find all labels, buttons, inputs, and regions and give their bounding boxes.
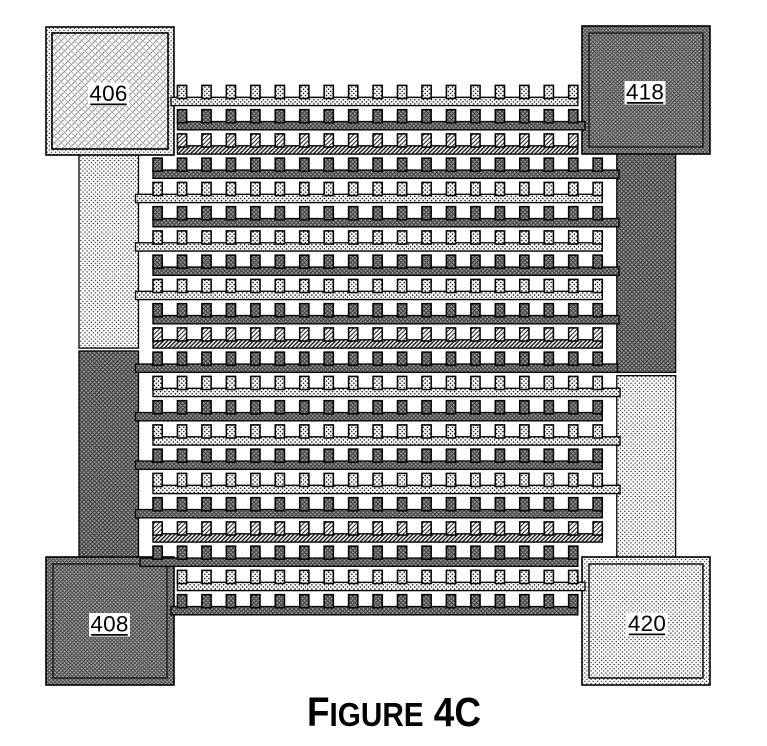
svg-text:406: 406 <box>89 81 127 106</box>
svg-text:FIGURE 4C: FIGURE 4C <box>307 690 481 735</box>
svg-text:408: 408 <box>90 612 128 637</box>
svg-text:418: 418 <box>626 80 664 105</box>
svg-text:420: 420 <box>628 611 666 636</box>
